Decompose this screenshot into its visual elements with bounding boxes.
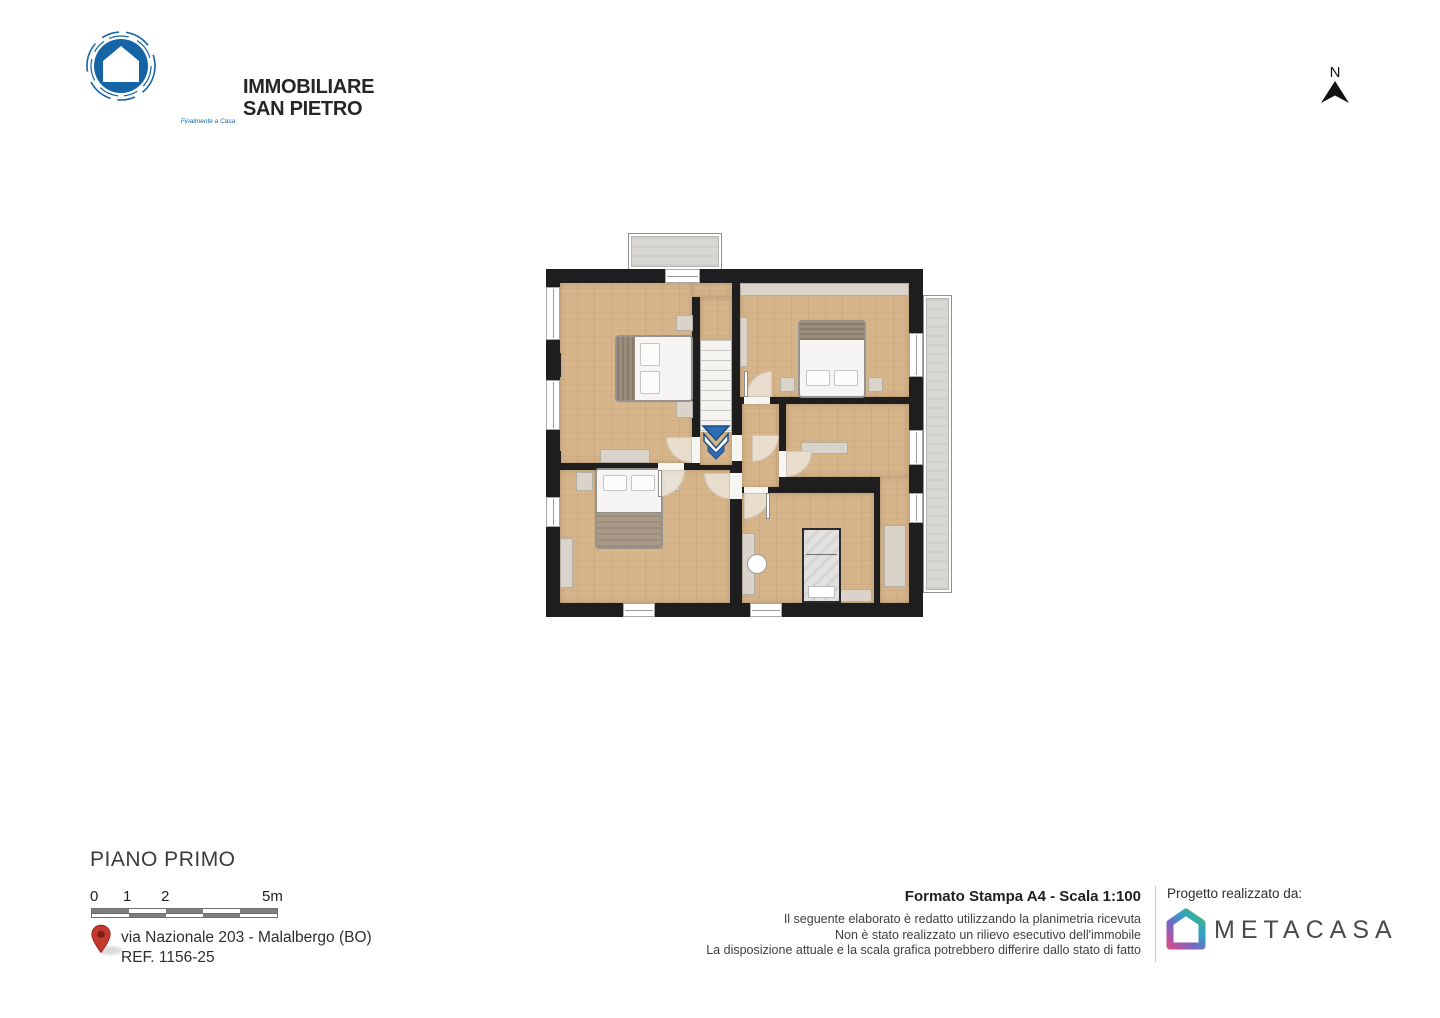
- floor-title: PIANO PRIMO: [90, 848, 236, 872]
- nightstand: [576, 472, 593, 491]
- door-opening: [692, 437, 700, 463]
- scale-label-0: 0: [90, 888, 98, 905]
- scale-seg: [203, 914, 240, 917]
- wardrobe: [740, 283, 909, 296]
- footer-divider: [1155, 886, 1156, 962]
- door-opening: [779, 451, 786, 477]
- print-format: Formato Stampa A4 - Scala 1:100: [706, 888, 1141, 905]
- floorplan-sheet: IMMOBILIARE SAN PIETRO Finalmente a Casa…: [0, 0, 1440, 1018]
- balcony-door: [665, 269, 700, 283]
- balcony-right: [923, 295, 952, 593]
- scale-seg: [92, 914, 129, 917]
- door-leaf: [658, 470, 662, 497]
- window: [546, 497, 560, 527]
- nightstand: [868, 377, 883, 392]
- wall-stairs-left: [692, 297, 700, 437]
- balcony-top: [628, 233, 722, 270]
- metacasa-house-logo-icon: [1166, 908, 1206, 950]
- disclaimer-line: Non è stato realizzato un rilievo esecut…: [706, 928, 1141, 944]
- double-bed: [798, 320, 866, 398]
- scale-bar: 0 1 2 5m: [90, 888, 290, 922]
- wardrobe: [884, 525, 906, 587]
- agency-name-line1: IMMOBILIARE: [243, 76, 374, 98]
- door-opening: [732, 435, 742, 461]
- door-opening: [730, 473, 742, 499]
- bed-headboard: [800, 322, 864, 340]
- scale-bar-graphic: [91, 908, 278, 918]
- scale-seg: [129, 914, 166, 917]
- scale-label-5m: 5m: [262, 888, 283, 905]
- door-opening: [658, 463, 684, 470]
- north-arrow-icon: [1321, 81, 1349, 103]
- agency-logo: IMMOBILIARE SAN PIETRO Finalmente a Casa: [84, 26, 344, 112]
- bed-pillow: [806, 370, 830, 386]
- disclaimer: Il seguente elaborato è redatto utilizza…: [706, 912, 1141, 959]
- floor-stair-head: [700, 297, 732, 342]
- address-line: via Nazionale 203 - Malalbergo (BO): [121, 928, 372, 948]
- door-leaf: [766, 493, 770, 519]
- scale-seg: [166, 914, 203, 917]
- shower-mat: [808, 586, 835, 598]
- disclaimer-line: Il seguente elaborato è redatto utilizza…: [706, 912, 1141, 928]
- balcony-top-deck: [631, 236, 719, 267]
- scale-seg: [240, 914, 277, 917]
- window: [623, 603, 655, 617]
- scale-bar-row-bottom: [92, 914, 277, 917]
- sink: [747, 554, 767, 574]
- dresser: [600, 449, 650, 463]
- nightstand: [676, 315, 693, 331]
- credit-label: Progetto realizzato da:: [1167, 886, 1302, 901]
- floor-plan: [540, 225, 960, 625]
- agency-name: IMMOBILIARE SAN PIETRO: [243, 76, 374, 120]
- address-block: via Nazionale 203 - Malalbergo (BO) REF.…: [121, 928, 372, 968]
- window: [909, 493, 923, 523]
- agency-name-line2: SAN PIETRO: [243, 98, 374, 120]
- scale-seg: [129, 909, 166, 913]
- location-pin-icon: [90, 924, 112, 954]
- floor-stair-top: [692, 283, 732, 297]
- nightstand: [780, 377, 795, 392]
- bed-pillow: [631, 475, 655, 491]
- bed-pillow: [603, 475, 627, 491]
- scale-seg: [166, 909, 203, 913]
- scale-seg: [240, 909, 277, 913]
- wall-pilaster: [546, 353, 561, 377]
- double-bed: [595, 468, 663, 549]
- san-pietro-house-logo-icon: [84, 30, 158, 104]
- double-bed: [615, 335, 693, 402]
- staircase: [700, 340, 732, 432]
- bed-blanket: [597, 512, 661, 547]
- agency-tagline: Finalmente a Casa: [172, 118, 244, 125]
- window: [546, 287, 560, 340]
- wall-pilaster: [546, 451, 561, 470]
- nightstand: [676, 401, 693, 418]
- bed-pillow: [834, 370, 858, 386]
- shower-line: [806, 554, 837, 555]
- bed-headboard: [617, 337, 635, 400]
- bed-pillow: [640, 343, 660, 366]
- shower: [802, 528, 841, 603]
- disclaimer-line: La disposizione attuale e la scala grafi…: [706, 943, 1141, 959]
- window: [546, 380, 560, 430]
- window: [750, 603, 782, 617]
- door-opening: [744, 397, 770, 404]
- north-label: N: [1315, 64, 1355, 81]
- bathroom-cabinet: [840, 589, 872, 602]
- stairs-down-arrow-icon: [701, 425, 731, 461]
- scale-seg: [203, 909, 240, 913]
- location-pin: [90, 924, 116, 958]
- bed-pillow: [640, 371, 660, 394]
- window: [909, 430, 923, 465]
- credit-brand: METACASA: [1214, 916, 1398, 945]
- scale-label-1: 1: [123, 888, 131, 905]
- door-leaf: [744, 371, 748, 397]
- window: [909, 333, 923, 377]
- shelf: [740, 317, 748, 367]
- scale-seg: [92, 909, 129, 913]
- balcony-right-deck: [926, 298, 949, 590]
- reference-number: REF. 1156-25: [121, 948, 372, 968]
- print-info-block: Formato Stampa A4 - Scala 1:100 Il segue…: [706, 888, 1141, 959]
- wardrobe: [560, 538, 573, 588]
- scale-label-2: 2: [161, 888, 169, 905]
- compass: N: [1315, 64, 1355, 108]
